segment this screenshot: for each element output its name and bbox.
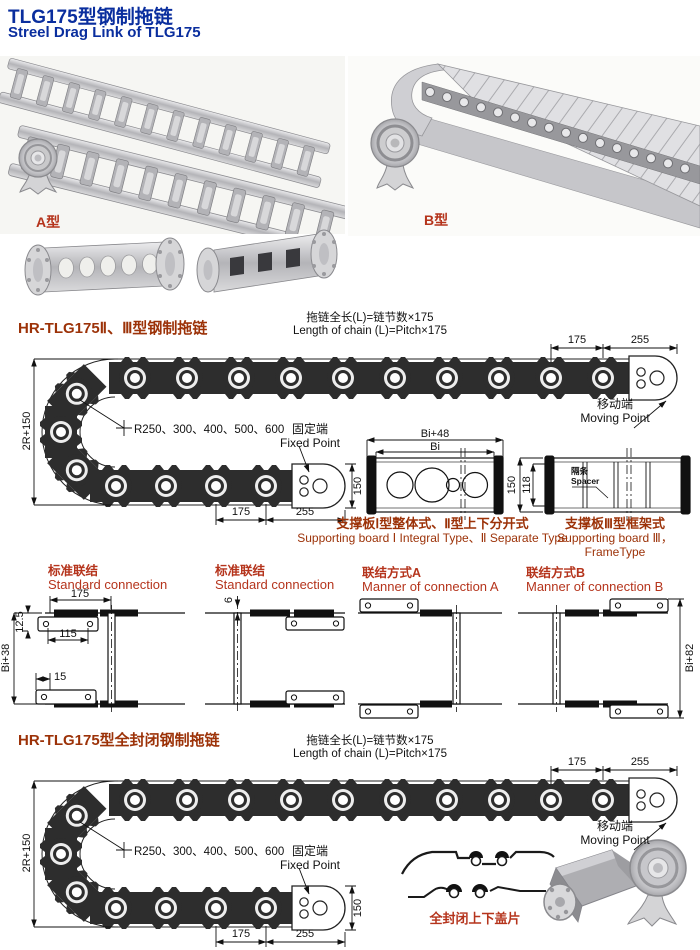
spacer-label: 隔条 Spacer [571,467,599,486]
dim-label: 150 [505,445,519,525]
dim-label: 255 [610,756,670,768]
section2-heading: HR-TLG175型全封闭钢制拖链 [18,729,220,750]
cover-plate-profiles [402,851,554,898]
dim-label: 2R+150 [20,391,34,471]
connection4-heading: 联结方式B Manner of connection B [526,566,663,594]
catalog-page: TLG175型钢制拖链 Streel Drag Link of TLG175 A… [0,0,700,950]
chain-roller-detail-a [19,139,57,194]
dim-label: 175 [547,334,607,346]
dim-label: 255 [275,928,335,940]
formula-cn: 拖链全长(L)=链节数×175 [270,312,470,325]
dim-label: Bi+38 [0,618,13,698]
fixed-point-label: 固定端 Fixed Point [255,422,365,450]
photo-b-label: B型 [424,210,448,230]
photo-a-label: A型 [36,212,60,232]
formula-cn: 拖链全长(L)=链节数×175 [270,735,470,748]
end-link-part-photo [544,840,686,926]
dim-label: 150 [351,446,365,526]
connection-diagrams [14,596,684,718]
dim-label: 118 [520,445,534,525]
dim-label: Bi+82 [683,618,697,698]
page-subtitle: Streel Drag Link of TLG175 [8,24,201,41]
cover-plate-caption: 全封闭上下盖片 [410,908,540,927]
support-bracket-photo-1 [25,238,184,295]
dim-label: 2R+150 [20,813,34,893]
fixed-point-label: 固定端 Fixed Point [255,844,365,872]
dim-label: 175 [211,506,271,518]
dim-label: 175 [211,928,271,940]
moving-point-label: 移动端 Moving Point [560,819,670,847]
section1-formula: 拖链全长(L)=链节数×175 Length of chain (L)=Pitc… [270,312,470,338]
dim-label: 15 [54,671,66,683]
dim-label: 6 [222,560,236,640]
board3-caption: 支撑板Ⅲ型框架式 Supporting board Ⅲ，FrameType [535,517,695,559]
formula-en: Length of chain (L)=Pitch×175 [270,748,470,761]
support-bracket-photo-2 [197,230,337,292]
dim-label: 175 [547,756,607,768]
section2-formula: 拖链全长(L)=链节数×175 Length of chain (L)=Pitc… [270,735,470,761]
dim-label: 175 [50,588,110,600]
dim-label: 115 [38,628,98,640]
dim-label: 255 [610,334,670,346]
connection3-heading: 联结方式A Manner of connection A [362,566,499,594]
moving-point-label: 移动端 Moving Point [560,397,670,425]
dim-label: Bi+48 [405,428,465,440]
dim-label: 150 [351,868,365,948]
supporting-board-3-drawing [520,448,690,520]
section1-heading: HR-TLG175Ⅱ、Ⅲ型钢制拖链 [18,317,207,338]
dim-label: Bi [405,441,465,453]
formula-en: Length of chain (L)=Pitch×175 [270,325,470,338]
dim-label: 12.5 [13,582,27,662]
photo-b-illustration [348,56,700,236]
